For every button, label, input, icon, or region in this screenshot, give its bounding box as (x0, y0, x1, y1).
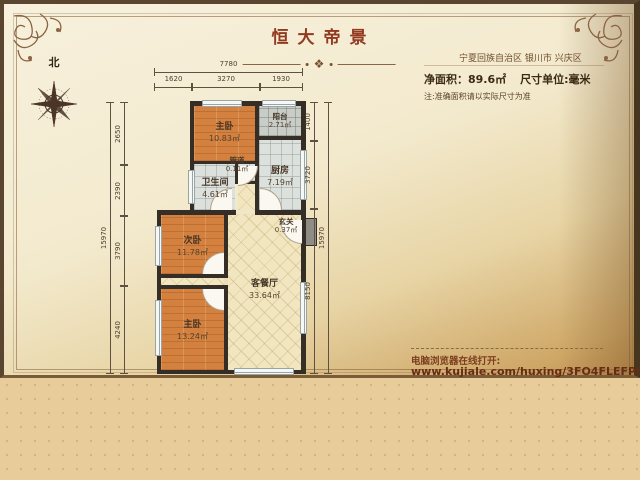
dimension-left-total: 15970 (106, 102, 114, 374)
divider-dot (306, 63, 309, 66)
unit-label: 尺寸单位:毫米 (520, 73, 590, 86)
wall (224, 210, 228, 278)
room-balcony (259, 106, 301, 136)
net-area-value: 89.6㎡ (468, 73, 506, 86)
dimension-right-total: 15970 (324, 102, 332, 374)
dimension-top-segment: 1620 (154, 83, 193, 91)
compass-rose-icon (30, 80, 78, 132)
dimension-right-segment: 8150 (310, 208, 318, 374)
window (202, 100, 242, 107)
hallway-floor (238, 184, 255, 210)
dimension-left-segment: 3790 (120, 215, 128, 287)
window (234, 368, 294, 375)
floorplan-page: 恒大帝景 ❖ 北 宁夏回族自治区 银川市 兴庆区 净面积：89.6㎡尺寸单位:毫… (0, 0, 640, 378)
divider-dot (329, 63, 332, 66)
info-divider-line (424, 65, 604, 66)
divider-line (337, 64, 395, 65)
floorplan-url-link[interactable]: www.kujiale.com/huxing/3FO4FLEFPUKK (411, 365, 640, 378)
dimension-left-segment: 4240 (120, 285, 128, 374)
area-note: 注:准确面积请以实际尺寸为准 (424, 91, 531, 102)
net-area-label: 净面积： (424, 73, 468, 86)
corridor-floor (161, 278, 224, 285)
window (155, 226, 162, 266)
project-location: 宁夏回族自治区 银川市 兴庆区 (459, 51, 582, 64)
dimension-top-segment: 3270 (191, 83, 261, 91)
wall (224, 285, 228, 374)
net-area-line: 净面积：89.6㎡尺寸单位:毫米 (424, 71, 591, 87)
wall (161, 274, 228, 278)
diamond-ornament-icon: ❖ (314, 58, 325, 70)
room-master-bedroom-top (194, 106, 255, 161)
wall (194, 161, 255, 164)
window (262, 100, 296, 107)
footer-divider-line (411, 348, 603, 349)
page-title: 恒大帝景 (4, 23, 634, 48)
viewer-background-canvas (0, 378, 640, 480)
dimension-right-segment: 1400 (310, 102, 318, 142)
wall (255, 210, 305, 215)
north-label: 北 (40, 54, 68, 70)
dimension-right-segment: 3720 (310, 140, 318, 210)
dimension-left-segment: 2390 (120, 164, 128, 217)
wall (255, 101, 259, 214)
dimension-left-segment: 2650 (120, 102, 128, 166)
window (188, 170, 195, 204)
dimension-top-segment: 1930 (259, 83, 303, 91)
wall (259, 136, 301, 140)
window (155, 300, 162, 356)
